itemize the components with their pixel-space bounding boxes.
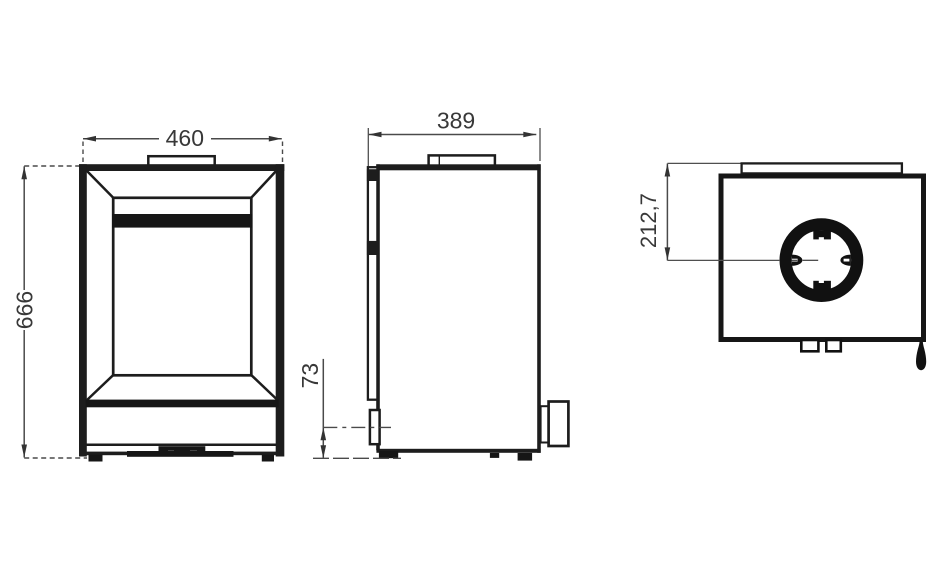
- svg-text:460: 460: [166, 125, 204, 151]
- svg-text:73: 73: [297, 363, 323, 389]
- svg-text:389: 389: [437, 108, 475, 134]
- svg-text:666: 666: [12, 291, 38, 329]
- svg-text:212,7: 212,7: [636, 193, 661, 248]
